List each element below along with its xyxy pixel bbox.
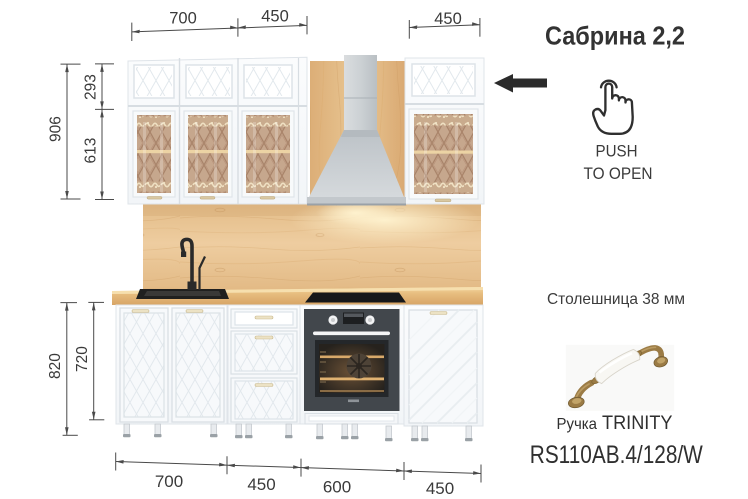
svg-text:TRINITY: TRINITY bbox=[602, 413, 673, 434]
svg-text:RS110AB.4/128/W: RS110AB.4/128/W bbox=[530, 441, 703, 469]
svg-text:450: 450 bbox=[434, 10, 462, 28]
svg-text:820: 820 bbox=[47, 353, 64, 379]
svg-text:450: 450 bbox=[247, 475, 275, 494]
svg-text:PUSH: PUSH bbox=[596, 143, 638, 161]
svg-text:TO OPEN: TO OPEN bbox=[584, 165, 653, 183]
svg-text:450: 450 bbox=[261, 8, 289, 26]
svg-text:Столешница 38 мм: Столешница 38 мм bbox=[547, 291, 685, 308]
svg-text:600: 600 bbox=[323, 478, 351, 497]
svg-text:293: 293 bbox=[83, 74, 100, 100]
svg-text:720: 720 bbox=[74, 346, 91, 372]
svg-text:700: 700 bbox=[169, 10, 197, 28]
svg-text:Сабрина 2,2: Сабрина 2,2 bbox=[545, 21, 685, 51]
svg-text:Ручка: Ручка bbox=[557, 416, 598, 433]
svg-text:450: 450 bbox=[426, 479, 454, 498]
svg-text:700: 700 bbox=[155, 472, 183, 491]
svg-text:613: 613 bbox=[83, 138, 100, 164]
svg-text:906: 906 bbox=[48, 116, 65, 142]
